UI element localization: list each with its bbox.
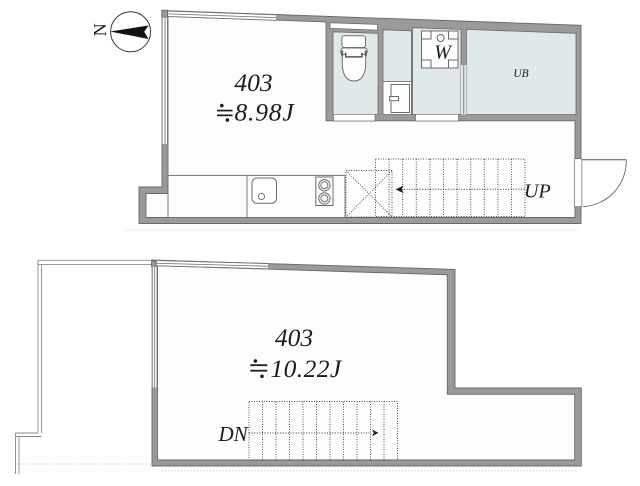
svg-text:8.98J: 8.98J	[235, 98, 296, 127]
svg-text:W: W	[434, 41, 453, 63]
svg-text:N: N	[90, 23, 110, 36]
svg-text:UP: UP	[524, 181, 551, 203]
svg-text:DN: DN	[218, 422, 249, 446]
svg-text:403: 403	[234, 68, 272, 97]
svg-text:UB: UB	[513, 68, 528, 80]
svg-text:403: 403	[275, 323, 313, 352]
svg-text:10.22J: 10.22J	[271, 354, 343, 383]
